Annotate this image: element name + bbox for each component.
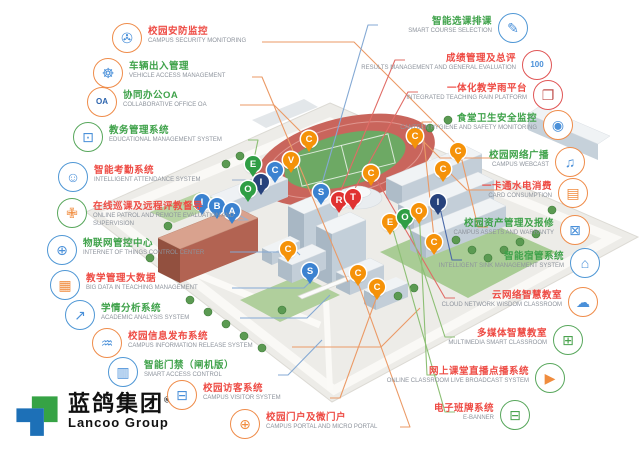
map-pin-c-11: C bbox=[301, 131, 317, 147]
pin-letter: C bbox=[272, 165, 279, 176]
callout-texts: 校园信息发布系统CAMPUS INFORMATION RELEASE SYSTE… bbox=[128, 328, 293, 351]
security-camera-icon-glyph: ✇ bbox=[121, 31, 133, 45]
callout-subtitle-en: VEHICLE ACCESS MANAGEMENT bbox=[129, 73, 294, 81]
pin-letter: R bbox=[336, 195, 343, 206]
callout-title-cn: 校园安防监控 bbox=[148, 23, 313, 37]
callout-title-cn: 智能选课排课 bbox=[327, 13, 492, 27]
callout-campus-webcast: ♫校园网络广播CAMPUS WEBCAST bbox=[555, 147, 585, 177]
callout-subtitle-en: CANTEEN HYGIENE AND SAFETY MONITORING bbox=[372, 125, 537, 133]
callout-title-cn: 校园资产管理及报修 bbox=[389, 215, 554, 229]
chart-icon: ▦ bbox=[50, 270, 80, 300]
callout-campus-information-release: ♒校园信息发布系统CAMPUS INFORMATION RELEASE SYST… bbox=[92, 328, 122, 358]
books-icon-glyph: ❐ bbox=[542, 88, 555, 102]
callout-title-cn: 校园访客系统 bbox=[203, 380, 368, 394]
chart-icon-glyph: ▦ bbox=[58, 278, 71, 292]
callout-subtitle-en: RESULTS MANAGEMENT AND GENERAL EVALUATIO… bbox=[351, 65, 516, 73]
oa-icon-glyph: OA bbox=[96, 98, 108, 106]
callout-title-cn: 车辆出入管理 bbox=[129, 58, 294, 72]
map-pin-t-10: T bbox=[345, 189, 361, 205]
callout-texts: 网上课堂直播点播系统ONLINE CLASSROOM LIVE BROADCAS… bbox=[364, 363, 529, 386]
callout-title-cn: 学情分析系统 bbox=[101, 300, 266, 314]
cloud-icon-glyph: ☁ bbox=[576, 295, 590, 309]
callout-title-cn: 食堂卫生安全监控 bbox=[372, 110, 537, 124]
callout-collaborative-office-oa: OA协同办公OACOLLABORATIVE OFFICE OA bbox=[87, 87, 117, 117]
shield-icon-glyph: ✙ bbox=[66, 206, 78, 220]
pin-letter: O bbox=[244, 184, 251, 195]
car-icon: ☸ bbox=[93, 58, 123, 88]
callout-title-cn: 云网络智慧教室 bbox=[397, 287, 562, 301]
callout-texts: 协同办公OACOLLABORATIVE OFFICE OA bbox=[123, 87, 288, 110]
callout-subtitle-en: MULTIMEDIA SMART CLASSROOM bbox=[382, 340, 547, 348]
callout-iot-control-center: ⊕物联网管控中心INTERNET OF THINGS CONTROL CENTE… bbox=[47, 235, 77, 265]
callout-texts: 教学管理大数据BIG DATA IN TEACHING MANAGEMENT bbox=[86, 270, 251, 293]
map-pin-v-2: V bbox=[283, 152, 299, 168]
callout-texts: 教务管理系统EDUCATIONAL MANAGEMENT SYSTEM bbox=[109, 122, 274, 145]
repair-monitor-icon: ⊠ bbox=[560, 215, 590, 245]
callout-campus-assets-warranty: ⊠校园资产管理及报修CAMPUS ASSETS AND WARRANTY bbox=[560, 215, 590, 245]
callout-title-cn: 多媒体智慧教室 bbox=[382, 325, 547, 339]
callout-title-cn: 成绩管理及总评 bbox=[351, 50, 516, 64]
callout-multimedia-smart-classroom: ⊞多媒体智慧教室MULTIMEDIA SMART CLASSROOM bbox=[553, 325, 583, 355]
callout-title-cn: 智能宿管系统 bbox=[399, 248, 564, 262]
callout-academic-analysis-system: ↗学情分析系统ACADEMIC ANALYSIS SYSTEM bbox=[65, 300, 95, 330]
callout-online-patrol-supervision: ✙在线巡课及远程评教督导ONLINE PATROL AND REMOTE EVA… bbox=[57, 198, 87, 228]
callout-title-cn: 物联网管控中心 bbox=[83, 235, 248, 249]
callout-campus-portal: ⊕校园门户及微门户CAMPUS PORTAL AND MICRO PORTAL bbox=[230, 409, 260, 439]
callout-intelligent-dorm-management: ⌂智能宿管系统INTELLIGENT SINK MANAGEMENT SYSTE… bbox=[570, 248, 600, 278]
callout-subtitle-en: BIG DATA IN TEACHING MANAGEMENT bbox=[86, 285, 251, 293]
callout-texts: 校园资产管理及报修CAMPUS ASSETS AND WARRANTY bbox=[389, 215, 554, 238]
pin-letter: C bbox=[431, 237, 438, 248]
callout-title-cn: 教务管理系统 bbox=[109, 122, 274, 136]
callout-texts: 成绩管理及总评RESULTS MANAGEMENT AND GENERAL EV… bbox=[351, 50, 516, 73]
pin-letter: T bbox=[350, 192, 356, 203]
classroom-icon-glyph: ⊞ bbox=[562, 333, 574, 347]
callout-subtitle-en: INTERNET OF THINGS CONTROL CENTER bbox=[83, 250, 248, 258]
callout-texts: 多媒体智慧教室MULTIMEDIA SMART CLASSROOM bbox=[382, 325, 547, 348]
logo-english-name: Lancoo Group bbox=[68, 415, 172, 430]
score-100-icon-glyph: 100 bbox=[530, 61, 543, 69]
callout-intelligent-attendance-system: ☺智能考勤系统INTELLIGENT ATTENDANCE SYSTEM bbox=[58, 162, 88, 192]
visitor-screen-icon: ⊟ bbox=[167, 380, 197, 410]
callout-subtitle-en: CAMPUS SECURITY MONITORING bbox=[148, 38, 313, 46]
security-camera-icon: ✇ bbox=[112, 23, 142, 53]
lancoo-logo: 蓝鸽集团® Lancoo Group bbox=[13, 392, 172, 442]
callout-texts: 学情分析系统ACADEMIC ANALYSIS SYSTEM bbox=[101, 300, 266, 323]
callout-subtitle-en: INTEGRATED TEACHING RAIN PLATFORM bbox=[362, 95, 527, 103]
course-board-icon-glyph: ✎ bbox=[507, 21, 519, 35]
repair-monitor-icon-glyph: ⊠ bbox=[569, 223, 581, 237]
map-pin-c-24: C bbox=[369, 279, 385, 295]
lancoo-logo-mark bbox=[13, 392, 61, 442]
pin-letter: C bbox=[306, 134, 313, 145]
callout-title-cn: 智能考勤系统 bbox=[94, 162, 259, 176]
callout-texts: 电子班牌系统E-BANNER bbox=[329, 400, 494, 423]
pin-letter: V bbox=[288, 155, 294, 166]
callout-e-banner: ⊟电子班牌系统E-BANNER bbox=[500, 400, 530, 430]
callout-title-cn: 一体化教学雨平台 bbox=[362, 80, 527, 94]
callout-online-classroom-broadcast: ▶网上课堂直播点播系统ONLINE CLASSROOM LIVE BROADCA… bbox=[535, 363, 565, 393]
globe-icon-glyph: ⊕ bbox=[56, 243, 68, 257]
card-icon: ▤ bbox=[558, 178, 588, 208]
pin-letter: C bbox=[285, 244, 292, 255]
shield-eye-icon: ◉ bbox=[543, 110, 573, 140]
callout-title-cn: 校园信息发布系统 bbox=[128, 328, 293, 342]
video-play-icon-glyph: ▶ bbox=[545, 371, 556, 385]
map-pin-c-21: C bbox=[280, 241, 296, 257]
callout-subtitle-en: CAMPUS WEBCAST bbox=[384, 162, 549, 170]
callout-subtitle-en: SMART ACCESS CONTROL bbox=[144, 372, 309, 380]
callout-texts: 物联网管控中心INTERNET OF THINGS CONTROL CENTER bbox=[83, 235, 248, 258]
callout-big-data-teaching: ▦教学管理大数据BIG DATA IN TEACHING MANAGEMENT bbox=[50, 270, 80, 300]
callout-subtitle-en: INTELLIGENT ATTENDANCE SYSTEM bbox=[94, 177, 259, 185]
analysis-icon-glyph: ↗ bbox=[74, 308, 86, 322]
callout-title-cn: 协同办公OA bbox=[123, 87, 288, 101]
callout-texts: 食堂卫生安全监控CANTEEN HYGIENE AND SAFETY MONIT… bbox=[372, 110, 537, 133]
callout-title-cn: 智能门禁（闸机版） bbox=[144, 357, 309, 371]
callout-title-cn: 电子班牌系统 bbox=[329, 400, 494, 414]
course-board-icon: ✎ bbox=[498, 13, 528, 43]
callout-canteen-hygiene-monitoring: ◉食堂卫生安全监控CANTEEN HYGIENE AND SAFETY MONI… bbox=[543, 110, 573, 140]
callout-integrated-teaching-platform: ❐一体化教学雨平台INTEGRATED TEACHING RAIN PLATFO… bbox=[533, 80, 563, 110]
logo-chinese-name: 蓝鸽集团® bbox=[68, 392, 172, 415]
robot-icon: ☺ bbox=[58, 162, 88, 192]
car-icon-glyph: ☸ bbox=[102, 66, 115, 80]
e-banner-icon-glyph: ⊟ bbox=[509, 408, 521, 422]
map-pin-c-1: C bbox=[267, 162, 283, 178]
callout-title-cn: 教学管理大数据 bbox=[86, 270, 251, 284]
callout-subtitle-en: CLOUD NETWORK WISDOM CLASSROOM bbox=[397, 302, 562, 310]
pin-letter: C bbox=[355, 268, 362, 279]
portal-globe-icon: ⊕ bbox=[230, 409, 260, 439]
card-icon-glyph: ▤ bbox=[566, 186, 579, 200]
e-banner-icon: ⊟ bbox=[500, 400, 530, 430]
callout-subtitle-en: ONLINE CLASSROOM LIVE BROADCAST SYSTEM bbox=[364, 378, 529, 386]
callout-vehicle-access-management: ☸车辆出入管理VEHICLE ACCESS MANAGEMENT bbox=[93, 58, 123, 88]
callout-title-cn: 校园网络广播 bbox=[384, 147, 549, 161]
pin-letter: S bbox=[318, 187, 324, 198]
callout-campus-visitor-system: ⊟校园访客系统CAMPUS VISITOR SYSTEM bbox=[167, 380, 197, 410]
callout-smart-course-selection: ✎智能选课排课SMART COURSE SELECTION bbox=[498, 13, 528, 43]
callout-texts: 智能考勤系统INTELLIGENT ATTENDANCE SYSTEM bbox=[94, 162, 259, 185]
map-pin-c-23: C bbox=[350, 265, 366, 281]
callout-subtitle-en: ONLINE PATROL AND REMOTE EVALUATION AND … bbox=[93, 213, 258, 228]
pin-letter: C bbox=[374, 282, 381, 293]
callout-texts: 校园安防监控CAMPUS SECURITY MONITORING bbox=[148, 23, 313, 46]
callout-subtitle-en: E-BANNER bbox=[329, 415, 494, 423]
callout-texts: 智能门禁（闸机版）SMART ACCESS CONTROL bbox=[144, 357, 309, 380]
callout-subtitle-en: COLLABORATIVE OFFICE OA bbox=[123, 102, 288, 110]
callout-subtitle-en: INTELLIGENT SINK MANAGEMENT SYSTEM bbox=[399, 263, 564, 271]
pin-letter: S bbox=[307, 266, 313, 277]
dorm-buildings-icon: ⌂ bbox=[570, 248, 600, 278]
callout-campus-security-monitoring: ✇校园安防监控CAMPUS SECURITY MONITORING bbox=[112, 23, 142, 53]
callout-subtitle-en: ACADEMIC ANALYSIS SYSTEM bbox=[101, 315, 266, 323]
callout-subtitle-en: CAMPUS PORTAL AND MICRO PORTAL bbox=[266, 424, 431, 432]
monitor-icon-glyph: ⊡ bbox=[82, 130, 94, 144]
callout-subtitle-en: SMART COURSE SELECTION bbox=[327, 28, 492, 36]
callout-subtitle-en: CAMPUS INFORMATION RELEASE SYSTEM bbox=[128, 343, 293, 351]
gate-icon: ▥ bbox=[108, 357, 138, 387]
callout-smart-access-control: ▥智能门禁（闸机版）SMART ACCESS CONTROL bbox=[108, 357, 138, 387]
callout-title-cn: 在线巡课及远程评教督导 bbox=[93, 198, 258, 212]
callout-cloud-network-wisdom-classroom: ☁云网络智慧教室CLOUD NETWORK WISDOM CLASSROOM bbox=[568, 287, 598, 317]
map-pin-c-12: C bbox=[363, 165, 379, 181]
callout-texts: 校园网络广播CAMPUS WEBCAST bbox=[384, 147, 549, 170]
portal-globe-icon-glyph: ⊕ bbox=[239, 417, 251, 431]
broadcast-icon: ♫ bbox=[555, 147, 585, 177]
video-play-icon: ▶ bbox=[535, 363, 565, 393]
callout-texts: 智能宿管系统INTELLIGENT SINK MANAGEMENT SYSTEM bbox=[399, 248, 564, 271]
smart-campus-infographic: 蓝鸽集团® Lancoo Group ✇校园安防监控CAMPUS SECURIT… bbox=[0, 0, 640, 450]
visitor-screen-icon-glyph: ⊟ bbox=[176, 388, 188, 402]
callout-texts: 一体化教学雨平台INTEGRATED TEACHING RAIN PLATFOR… bbox=[362, 80, 527, 103]
pin-letter: I bbox=[260, 177, 263, 188]
books-icon: ❐ bbox=[533, 80, 563, 110]
callout-card-consumption: ▤一卡通水电消费CARD CONSUMPTION bbox=[558, 178, 588, 208]
pin-letter: C bbox=[368, 168, 375, 179]
shield-eye-icon-glyph: ◉ bbox=[552, 118, 564, 132]
map-pin-s-8: S bbox=[313, 184, 329, 200]
gate-icon-glyph: ▥ bbox=[116, 365, 129, 379]
globe-icon: ⊕ bbox=[47, 235, 77, 265]
callout-texts: 一卡通水电消费CARD CONSUMPTION bbox=[387, 178, 552, 201]
callout-texts: 车辆出入管理VEHICLE ACCESS MANAGEMENT bbox=[129, 58, 294, 81]
monitor-icon: ⊡ bbox=[73, 122, 103, 152]
callout-texts: 智能选课排课SMART COURSE SELECTION bbox=[327, 13, 492, 36]
callout-subtitle-en: CARD CONSUMPTION bbox=[387, 193, 552, 201]
callout-results-management: 100成绩管理及总评RESULTS MANAGEMENT AND GENERAL… bbox=[522, 50, 552, 80]
analysis-icon: ↗ bbox=[65, 300, 95, 330]
callout-title-cn: 一卡通水电消费 bbox=[387, 178, 552, 192]
map-pin-s-22: S bbox=[302, 263, 318, 279]
callout-educational-management-system: ⊡教务管理系统EDUCATIONAL MANAGEMENT SYSTEM bbox=[73, 122, 103, 152]
classroom-icon: ⊞ bbox=[553, 325, 583, 355]
score-100-icon: 100 bbox=[522, 50, 552, 80]
oa-icon: OA bbox=[87, 87, 117, 117]
robot-icon-glyph: ☺ bbox=[66, 170, 80, 184]
callout-title-cn: 网上课堂直播点播系统 bbox=[364, 363, 529, 377]
signal-icon: ♒ bbox=[92, 328, 122, 358]
callout-texts: 云网络智慧教室CLOUD NETWORK WISDOM CLASSROOM bbox=[397, 287, 562, 310]
callout-texts: 在线巡课及远程评教督导ONLINE PATROL AND REMOTE EVAL… bbox=[93, 198, 258, 228]
callout-subtitle-en: CAMPUS ASSETS AND WARRANTY bbox=[389, 230, 554, 238]
broadcast-icon-glyph: ♫ bbox=[565, 155, 576, 169]
dorm-buildings-icon-glyph: ⌂ bbox=[581, 256, 589, 270]
signal-icon-glyph: ♒ bbox=[101, 336, 114, 350]
shield-icon: ✙ bbox=[57, 198, 87, 228]
cloud-icon: ☁ bbox=[568, 287, 598, 317]
callout-subtitle-en: EDUCATIONAL MANAGEMENT SYSTEM bbox=[109, 137, 274, 145]
